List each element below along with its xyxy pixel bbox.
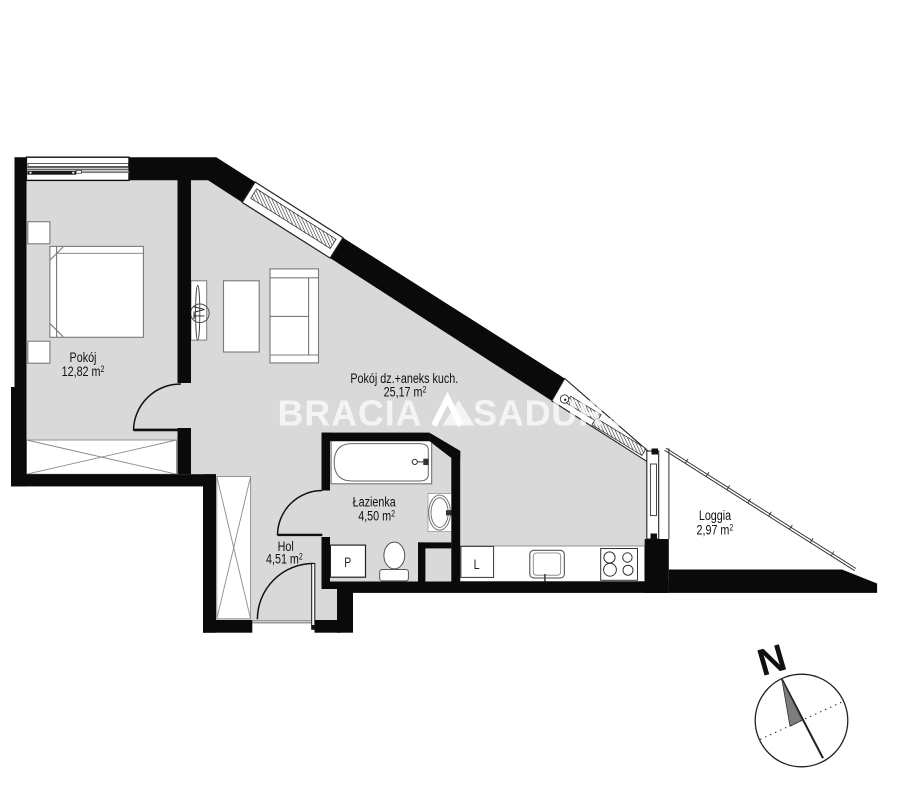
svg-text:P: P xyxy=(344,555,351,571)
svg-text:L: L xyxy=(474,557,480,573)
svg-text:2,97 m2: 2,97 m2 xyxy=(697,522,734,538)
svg-text:TV: TV xyxy=(190,306,208,319)
svg-text:BRACIA: BRACIA xyxy=(278,393,423,434)
svg-text:12,82 m2: 12,82 m2 xyxy=(62,364,105,380)
svg-text:SADURSCY: SADURSCY xyxy=(473,393,681,434)
svg-text:Loggia: Loggia xyxy=(699,508,731,524)
svg-text:4,51 m2: 4,51 m2 xyxy=(266,551,303,567)
svg-text:4,50 m2: 4,50 m2 xyxy=(358,508,395,524)
